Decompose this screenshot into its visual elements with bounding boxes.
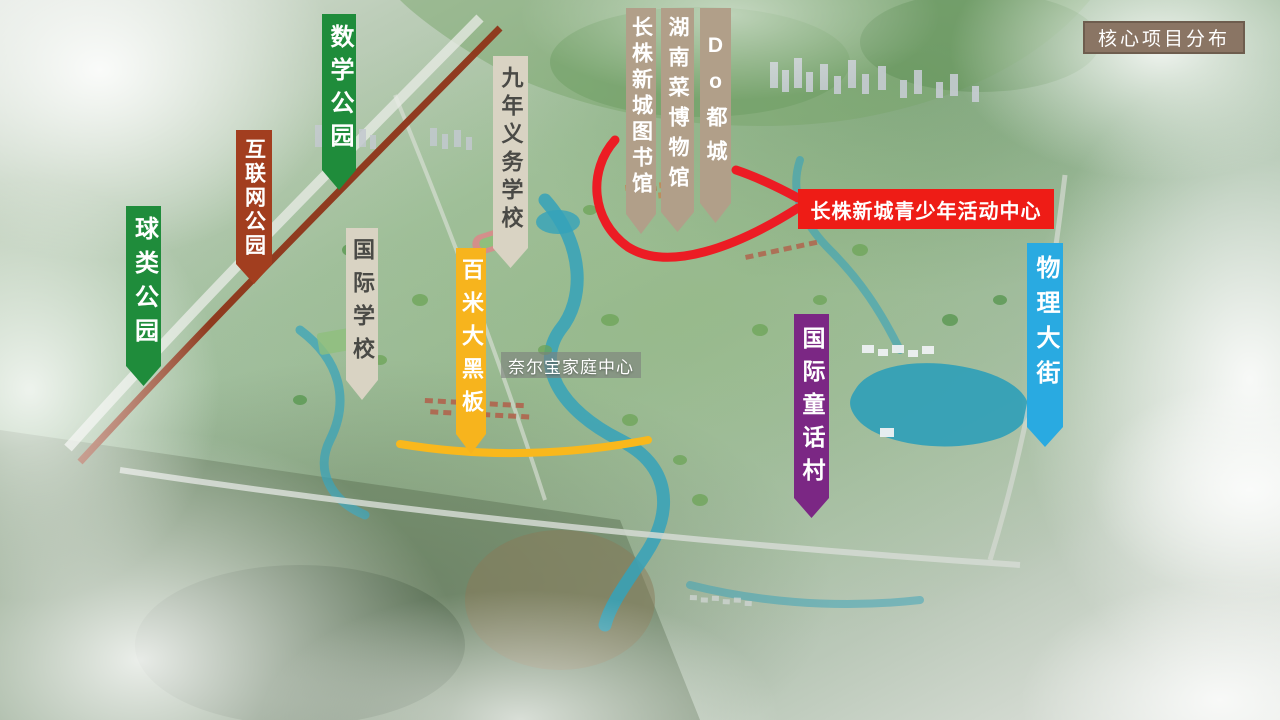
callout-arrow-internet-park: 互联网公园 — [236, 130, 272, 284]
callout-arrow-nine-year-school: 九年义务学校 — [493, 56, 528, 268]
callout-label: 九年义务学校 — [500, 56, 522, 234]
callout-arrow-ball-sports-park: 球类公园 — [126, 206, 161, 386]
youth-center-banner: 长株新城青少年活动中心 — [798, 189, 1054, 229]
neobio-family-center-text: 奈尔宝家庭中心 — [508, 353, 634, 378]
youth-center-banner-label: 长株新城青少年活动中心 — [811, 195, 1042, 224]
callout-label: 球类公园 — [132, 206, 156, 352]
callout-label: 物理大街 — [1033, 243, 1057, 395]
core-project-distribution-slide: 数学公园 互联网公园 球类公园 九年义务学校 国际学校 百米大黑板 长株新城图书… — [0, 0, 1280, 720]
lake — [850, 363, 1029, 446]
callout-arrow-do-city: Do都城 — [700, 8, 731, 223]
callout-arrow-math-park: 数学公园 — [322, 14, 356, 190]
callout-label: 长株新城图书馆 — [631, 8, 652, 198]
callout-arrow-blackboard: 百米大黑板 — [456, 248, 486, 454]
dark-forest-patch — [135, 565, 465, 720]
neobio-family-center-label: 奈尔宝家庭中心 — [501, 352, 641, 378]
callout-arrow-physics-street: 物理大街 — [1027, 243, 1063, 447]
callout-arrow-fairytale-village: 国际童话村 — [794, 314, 829, 518]
villa-row-east — [745, 240, 817, 260]
bare-soil-patch — [465, 530, 655, 670]
callout-label: 国际童话村 — [800, 314, 823, 491]
callout-arrow-library: 长株新城图书馆 — [626, 8, 656, 234]
callout-label: 国际学校 — [351, 228, 373, 370]
callout-label: 互联网公园 — [244, 130, 265, 258]
page-title-text: 核心项目分布 — [1098, 24, 1230, 51]
callout-arrow-museum: 湖南菜博物馆 — [661, 8, 694, 232]
callout-arrow-international-school: 国际学校 — [346, 228, 378, 400]
callout-label: 数学公园 — [327, 14, 351, 156]
callout-label: 湖南菜博物馆 — [667, 8, 688, 196]
page-title: 核心项目分布 — [1083, 21, 1245, 54]
pond — [536, 210, 580, 234]
callout-label: 百米大黑板 — [460, 248, 482, 423]
callout-label: Do都城 — [705, 8, 726, 174]
